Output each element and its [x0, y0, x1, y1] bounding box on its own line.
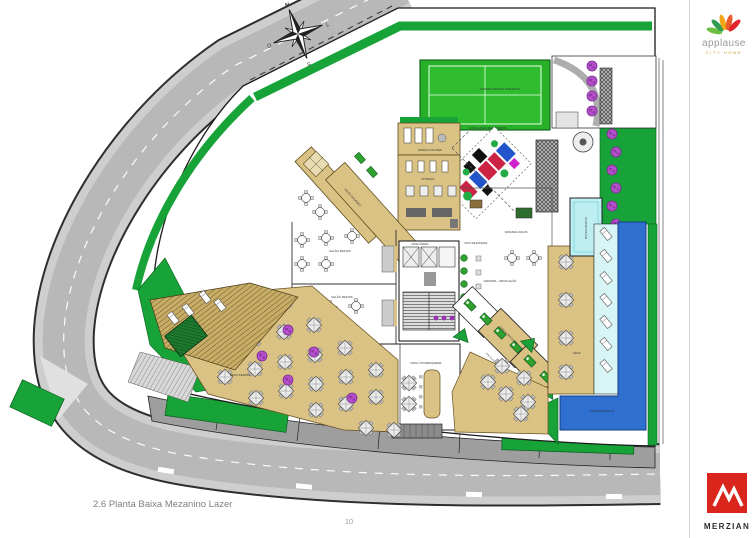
- margin-divider: [689, 0, 690, 538]
- applause-wordmark: applause: [697, 38, 751, 49]
- label-varanda-jogos: VARANDA JOGOS: [505, 230, 528, 234]
- label-salao-festas-1: SALÃO FESTAS: [329, 248, 351, 253]
- label-duto-entrada: DUTO DE ENTRADA: [465, 242, 488, 245]
- label-salao-festas-2: SALÃO FESTAS: [331, 294, 353, 299]
- merzian-wordmark: MERZIAN: [701, 522, 753, 531]
- right-green-strip: [648, 224, 657, 445]
- label-fitness: FITNESS: [422, 177, 435, 181]
- label-deck-festas: DECK FESTAS: [230, 373, 251, 377]
- drawing-caption: 2.6 Planta Baixa Mezanino Lazer: [93, 499, 232, 510]
- merzian-mark-icon: [704, 472, 750, 516]
- service-block: [536, 140, 558, 212]
- label-pizza: PIZZA / CHURRASQUEIRA: [411, 362, 442, 365]
- label-quadra: QUADRA GRAMA SINTÉTICA: [480, 86, 521, 91]
- label-piscina-adulto: PISCINA ADULTO: [590, 409, 615, 413]
- pool-deck: DECK: [548, 246, 594, 394]
- applause-leaves-icon: [702, 8, 746, 36]
- presentation-page: QUADRA GRAMA SINTÉTICA CIRCULAÇÃO DESCOB…: [0, 0, 754, 538]
- floor-plan: QUADRA GRAMA SINTÉTICA CIRCULAÇÃO DESCOB…: [0, 0, 754, 538]
- merzian-logo: MERZIAN: [701, 472, 753, 531]
- label-ante-camara: ANTE-CÂMARA: [411, 243, 429, 246]
- applause-logo: applause CITY HOME: [697, 8, 751, 55]
- label-deck: DECK: [573, 351, 580, 355]
- label-circulacao-descoberta: CIRCULAÇÃO DESCOBERTA: [469, 125, 507, 130]
- label-piscina-infantil: PISCINA INFANTIL: [584, 216, 588, 239]
- pilates-room: ESPAÇO PILATES: [398, 117, 460, 155]
- page-number: 10: [0, 517, 698, 526]
- label-pilates: ESPAÇO PILATES: [418, 148, 442, 152]
- fitness-room: FITNESS: [398, 155, 460, 230]
- applause-tagline: CITY HOME: [697, 50, 751, 55]
